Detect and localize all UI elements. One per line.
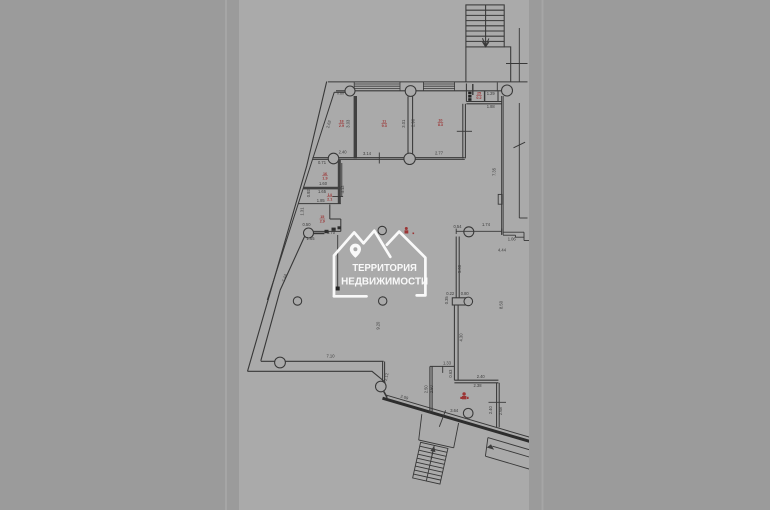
svg-text:1.9: 1.9 <box>322 176 327 180</box>
svg-text:2.9: 2.9 <box>339 124 344 128</box>
svg-text:5.60: 5.60 <box>457 264 462 273</box>
svg-text:2.50: 2.50 <box>423 385 428 394</box>
svg-text:4.30: 4.30 <box>458 333 463 342</box>
svg-text:2.50: 2.50 <box>429 385 434 394</box>
svg-text:1.29: 1.29 <box>487 91 496 96</box>
svg-text:7.10: 7.10 <box>327 353 336 358</box>
svg-text:1.33: 1.33 <box>443 360 452 365</box>
svg-text:4.12: 4.12 <box>340 185 345 194</box>
svg-text:2.1: 2.1 <box>327 197 332 201</box>
svg-text:3.14: 3.14 <box>363 151 372 156</box>
svg-text:1.85: 1.85 <box>317 198 326 203</box>
svg-text:0.60: 0.60 <box>337 92 344 96</box>
svg-text:1.65: 1.65 <box>307 236 316 241</box>
svg-text:ТЕРРИТОРИЯ: ТЕРРИТОРИЯ <box>352 262 417 274</box>
svg-text:0.54: 0.54 <box>454 224 463 229</box>
svg-text:8.3: 8.3 <box>438 123 443 127</box>
svg-text:1.31: 1.31 <box>300 207 305 216</box>
svg-text:1.88: 1.88 <box>487 104 496 109</box>
svg-text:3.01: 3.01 <box>401 119 406 128</box>
svg-text:2.38: 2.38 <box>474 383 483 388</box>
svg-text:2.77: 2.77 <box>435 151 444 156</box>
svg-text:3.64: 3.64 <box>450 408 459 413</box>
svg-text:2.9: 2.9 <box>320 220 325 224</box>
svg-text:11: 11 <box>382 119 386 123</box>
svg-text:0.63: 0.63 <box>448 369 453 378</box>
svg-text:2.68: 2.68 <box>498 406 503 415</box>
svg-text:9.3: 9.3 <box>382 124 387 128</box>
svg-text:1.65: 1.65 <box>318 189 327 194</box>
svg-text:0.80: 0.80 <box>461 291 470 296</box>
svg-text:0.2: 0.2 <box>476 96 481 100</box>
svg-text:1.60: 1.60 <box>319 181 328 186</box>
svg-text:1.74: 1.74 <box>482 222 491 227</box>
svg-text:18: 18 <box>339 119 343 123</box>
svg-text:2.40: 2.40 <box>488 405 493 414</box>
svg-text:0.71: 0.71 <box>318 160 327 165</box>
svg-text:15: 15 <box>320 215 324 219</box>
svg-text:2.40: 2.40 <box>477 374 486 379</box>
svg-text:2.96: 2.96 <box>411 118 416 127</box>
svg-text:0.35: 0.35 <box>444 296 449 305</box>
svg-text:4.44: 4.44 <box>498 247 507 252</box>
svg-text:16: 16 <box>323 172 327 176</box>
svg-text:0.70: 0.70 <box>327 230 336 235</box>
svg-text:10: 10 <box>438 118 442 122</box>
svg-text:0.22: 0.22 <box>446 291 455 296</box>
svg-text:0.92: 0.92 <box>306 189 311 198</box>
svg-text:7.35: 7.35 <box>492 167 497 176</box>
svg-text:9.20: 9.20 <box>376 321 381 330</box>
svg-text:8.50: 8.50 <box>498 300 503 309</box>
svg-text:НЕДВИЖИМОСТИ: НЕДВИЖИМОСТИ <box>341 275 428 287</box>
svg-text:3.03: 3.03 <box>345 119 350 128</box>
svg-text:1.06: 1.06 <box>508 237 517 242</box>
svg-text:0.50: 0.50 <box>303 222 312 227</box>
svg-text:2.40: 2.40 <box>339 150 348 155</box>
